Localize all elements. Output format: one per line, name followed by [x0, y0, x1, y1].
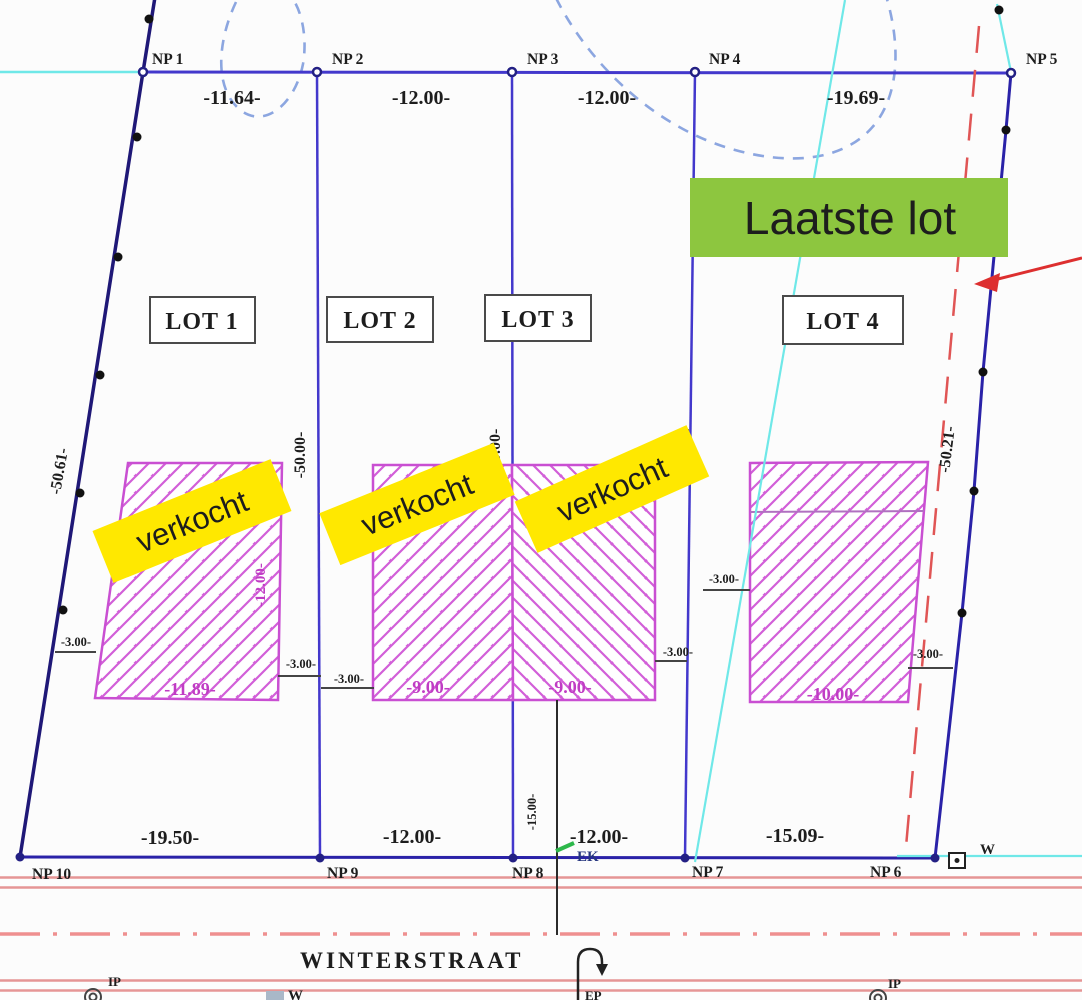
np10-label: NP 10	[32, 866, 71, 883]
survey-dot	[145, 15, 154, 24]
dim-footprint-lot4-width: -10.00-	[807, 684, 860, 704]
dim-top-1: -11.64-	[203, 87, 260, 109]
setback-label: -3.00-	[61, 635, 91, 649]
lot3-label: LOT 3	[501, 307, 574, 333]
street-name: WINTERSTRAAT	[300, 948, 523, 973]
dim-top-3: -12.00-	[578, 87, 636, 109]
survey-dot	[958, 609, 967, 618]
red-arrow	[974, 258, 1082, 292]
lamp-post-arrow-icon	[596, 964, 608, 976]
boundary-bottom	[20, 857, 935, 858]
red-arrow-line	[990, 258, 1082, 281]
np-marker	[691, 68, 699, 76]
np6-label: NP 6	[870, 864, 902, 881]
dim-bottom-4: -15.09-	[766, 825, 824, 847]
ek-label: EK	[577, 849, 599, 865]
np-marker	[681, 854, 690, 863]
np-marker	[1007, 69, 1015, 77]
np8-label: NP 8	[512, 865, 544, 882]
dim-lot12-depth: -50.00-	[292, 432, 309, 479]
boundary-top	[143, 72, 1011, 73]
survey-dot	[995, 6, 1004, 15]
np1-label: NP 1	[152, 51, 183, 68]
survey-dot	[979, 368, 988, 377]
ep-label: EP	[585, 988, 602, 1000]
dim-footprint-lot1-width: -11.89-	[164, 679, 216, 699]
w-label-street: W	[288, 988, 303, 1000]
plan-drawing: -11.64- -12.00- -12.00- -19.69- -19.50- …	[0, 0, 1082, 1000]
survey-dot	[114, 253, 123, 262]
footprint-lot4	[750, 462, 928, 702]
dim-left-side: -50.61-	[47, 447, 72, 496]
lot2-label: LOT 2	[343, 308, 416, 334]
boundary-left	[20, 0, 155, 857]
setback-label: -3.00-	[334, 672, 364, 686]
utility-box-dot-icon	[955, 858, 960, 863]
np3-label: NP 3	[527, 51, 559, 68]
setback-label: -3.00-	[286, 657, 316, 671]
sketch-loop-large	[556, 0, 896, 158]
ip-label: IP	[108, 974, 121, 989]
np-marker	[139, 68, 147, 76]
dim-depth-to-street: -15.00-	[525, 794, 539, 830]
np5-label: NP 5	[1026, 51, 1058, 68]
w-label: W	[980, 842, 995, 858]
cadastral-plan: -11.64- -12.00- -12.00- -19.69- -19.50- …	[0, 0, 1082, 1000]
dim-footprint-lot1-depth: -12.00-	[253, 563, 269, 607]
np-marker	[509, 854, 518, 863]
dim-bottom-3: -12.00-	[570, 826, 628, 848]
street-marker-icon	[266, 991, 284, 1000]
lot1-label: LOT 1	[165, 309, 238, 335]
lot-line-1-2	[317, 72, 320, 858]
dim-top-4: -19.69-	[827, 87, 885, 109]
np-marker	[508, 68, 516, 76]
reference-lines	[0, 0, 1082, 862]
np7-label: NP 7	[692, 864, 724, 881]
setback-label: -3.00-	[709, 572, 739, 586]
dim-footprint-lot3-width: -9.00-	[548, 677, 592, 697]
survey-dot	[96, 371, 105, 380]
red-arrowhead-icon	[974, 273, 1000, 292]
np-marker	[16, 853, 25, 862]
np4-label: NP 4	[709, 51, 741, 68]
dim-top-2: -12.00-	[392, 87, 450, 109]
dim-bottom-1: -19.50-	[141, 827, 199, 849]
survey-dot	[59, 606, 68, 615]
cyan-line-diagonal	[695, 0, 845, 862]
setback-label: -3.00-	[663, 645, 693, 659]
dim-bottom-2: -12.00-	[383, 826, 441, 848]
setback-label: -3.00-	[913, 647, 943, 661]
footprint-lot4-split-line	[750, 511, 924, 512]
ip-symbol-icon	[875, 995, 882, 1000]
np-marker	[313, 68, 321, 76]
laatste-lot-label: Laatste lot	[744, 192, 956, 244]
street-lines	[0, 878, 1082, 991]
laatste-lot-annotation: Laatste lot	[690, 178, 1008, 257]
survey-dot	[76, 489, 85, 498]
survey-dot	[133, 133, 142, 142]
lot4-label: LOT 4	[806, 309, 879, 335]
survey-dot	[970, 487, 979, 496]
np9-label: NP 9	[327, 865, 359, 882]
sketch-loops	[221, 0, 895, 158]
np-marker	[931, 854, 940, 863]
ip-symbol-icon	[90, 994, 97, 1000]
ip-label-right: IP	[888, 976, 901, 991]
dim-footprint-lot2-width: -9.00-	[406, 677, 450, 697]
survey-dot	[1002, 126, 1011, 135]
np2-label: NP 2	[332, 51, 364, 68]
dim-right-side: -50.21-	[936, 425, 959, 473]
lot-labels: LOT 1 LOT 2 LOT 3 LOT 4	[150, 295, 903, 344]
np-marker	[316, 854, 325, 863]
parcel-boundaries	[20, 0, 1011, 858]
